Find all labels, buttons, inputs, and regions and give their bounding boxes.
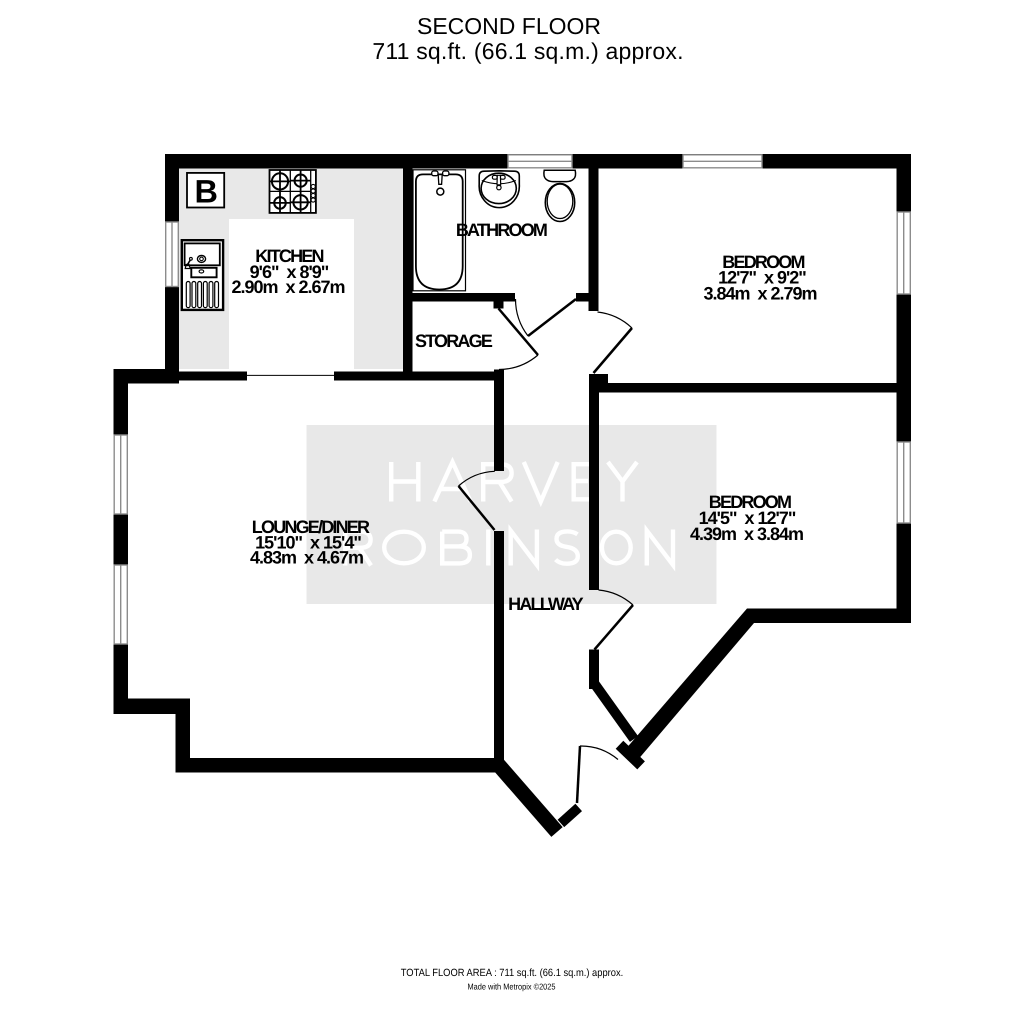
svg-text:HALLWAY: HALLWAY [508,594,584,614]
svg-text:2.90m x 2.67m: 2.90m x 2.67m [231,277,344,297]
svg-text:Made with Metropix ©2025: Made with Metropix ©2025 [467,982,555,992]
svg-text:4.39m x 3.84m: 4.39m x 3.84m [690,524,803,544]
svg-text:BATHROOM: BATHROOM [456,220,547,240]
svg-text:STORAGE: STORAGE [415,331,493,351]
svg-text:TOTAL FLOOR AREA : 711 sq.ft.: TOTAL FLOOR AREA : 711 sq.ft. (66.1 sq.m… [401,967,623,979]
svg-text:3.84m x 2.79m: 3.84m x 2.79m [703,284,816,304]
svg-text:SECOND FLOOR: SECOND FLOOR [417,13,601,39]
svg-text:B: B [195,173,218,209]
svg-text:711 sq.ft. (66.1 sq.m.) approx: 711 sq.ft. (66.1 sq.m.) approx. [372,38,683,64]
svg-text:4.83m x 4.67m: 4.83m x 4.67m [250,548,363,568]
